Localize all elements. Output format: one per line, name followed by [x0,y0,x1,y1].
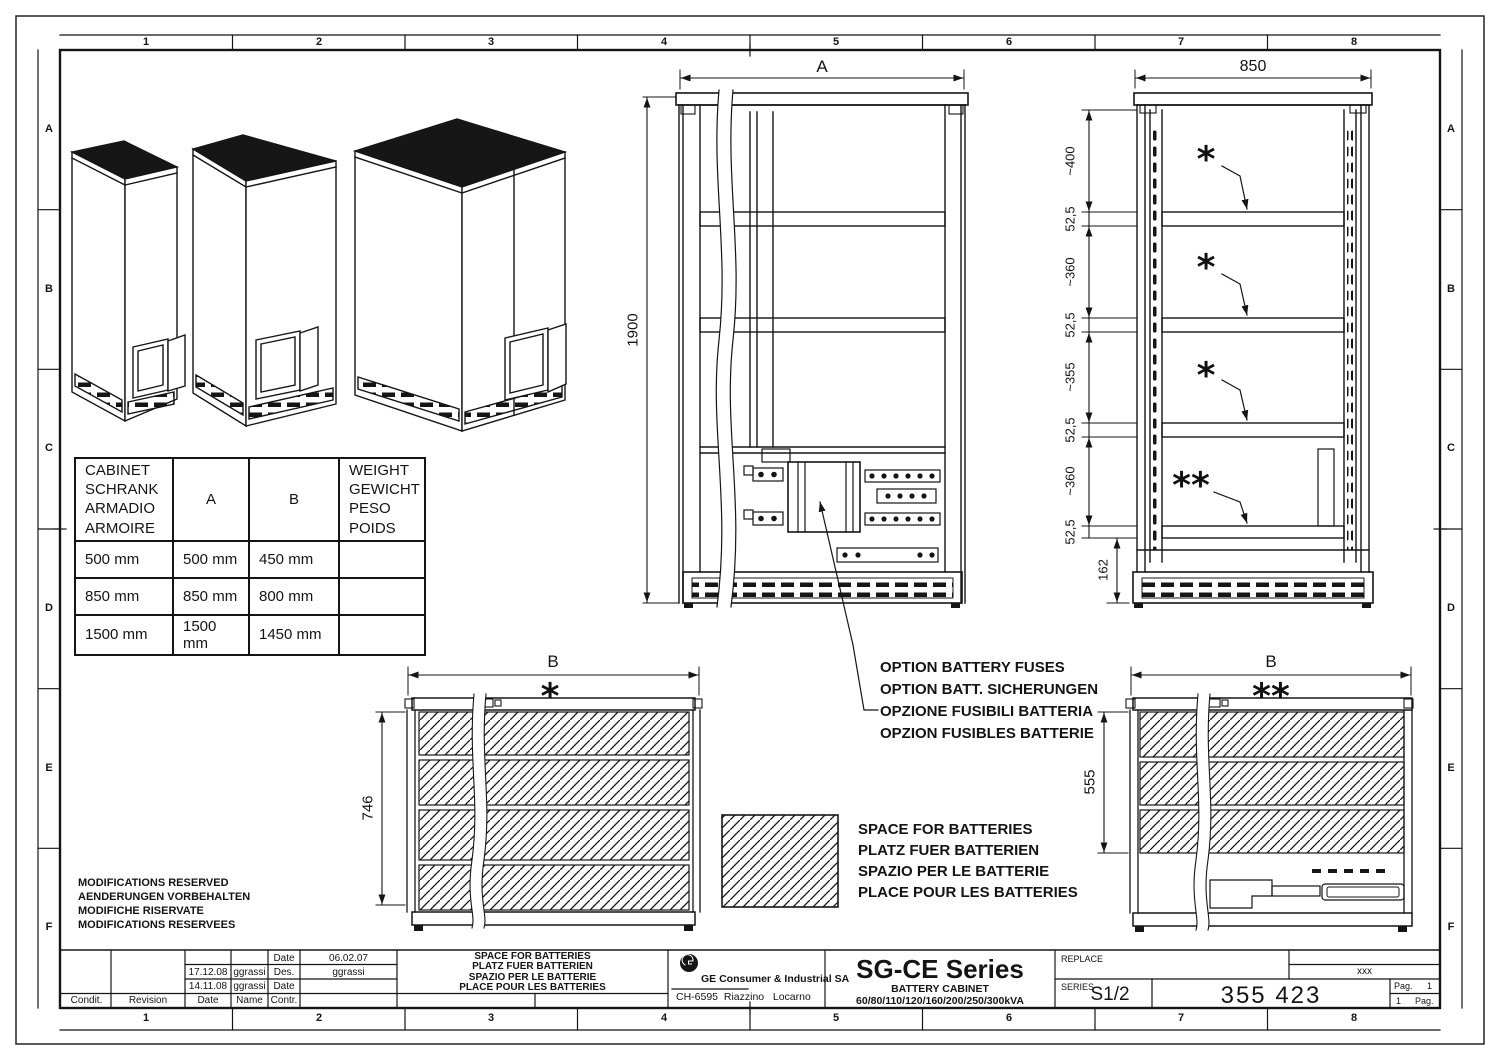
grid-column-label: 5 [821,36,851,48]
table-header-b: B [249,458,339,541]
modifications-note-line: AENDERUNGEN VORBEHALTEN [78,891,250,903]
grid-row-label: A [1436,123,1466,135]
tray-marker-double-asterisk: ** [1172,466,1210,507]
dim-label-shelf-thickness: 52,5 [1063,417,1078,442]
battery-legend-line: SPACE FOR BATTERIES [858,822,1032,839]
shelf-marker-asterisk: * [1197,356,1216,397]
grid-row-label: C [1436,442,1466,454]
revision-des-value: ggrassi [300,967,397,978]
dim-label-plinth-height: 162 [1096,559,1111,581]
option-note-line: OPTION BATT. SICHERUNGEN [880,682,1098,699]
plan-view-right-drawing [1126,694,1413,932]
product-type: BATTERY CABINET [825,984,1055,996]
battery-legend-line: SPAZIO PER LE BATTERIE [858,864,1049,881]
drawing-title-line: PLACE POUR LES BATTERIES [397,983,668,994]
revision-date-label: Date [268,953,300,964]
option-note-line: OPZIONE FUSIBILI BATTERIA [880,704,1093,721]
plan-right-marker-double-asterisk: ** [1252,677,1290,718]
grid-column-label: 5 [821,1012,851,1024]
table-header-a: A [173,458,249,541]
grid-column-label: 4 [649,1012,679,1024]
revision-header-date: Date [185,995,231,1006]
product-series-title: SG-CE Series [825,955,1055,984]
grid-column-label: 2 [304,36,334,48]
side-view-drawing [1133,93,1373,608]
battery-legend-line: PLACE POUR LES BATTERIES [858,885,1078,902]
pag-bottom-value: 1 [1396,996,1401,1006]
dim-label-front-width: A [802,57,842,76]
dim-label-shelf-gap: ~400 [1063,146,1078,175]
table-row: 500 mm 500 mm 450 mm [75,541,425,578]
grid-row-label: D [1436,602,1466,614]
shelf-marker-asterisk: * [1197,248,1216,289]
revision-date-value: 06.02.07 [300,953,397,964]
grid-row-label: F [1436,921,1466,933]
dim-label-shelf-thickness: 52,5 [1063,312,1078,337]
grid-column-label: 8 [1339,1012,1369,1024]
revision-header-name: Name [231,995,268,1006]
table-header-cabinet: CABINETSCHRANK ARMADIOARMOIRE [85,461,168,538]
pag-bottom-label: Pag. [1415,996,1434,1006]
dim-label-plan-left-width: B [533,652,573,671]
front-view-drawing [676,90,968,608]
table-row: 850 mm 850 mm 800 mm [75,578,425,615]
dim-label-plan-right-width: B [1251,652,1291,671]
modifications-note-line: MODIFICHE RISERVATE [78,905,204,917]
grid-row-label: B [1436,283,1466,295]
revision-header-revision: Revision [111,995,185,1006]
dim-label-shelf-gap: ~355 [1063,362,1078,391]
grid-column-label: 7 [1166,1012,1196,1024]
modifications-note-line: MODIFICATIONS RESERVED [78,877,229,889]
dim-label-shelf-gap: ~360 [1063,257,1078,286]
grid-row-label: E [34,762,64,774]
grid-column-label: 1 [131,36,161,48]
dim-label-shelf-thickness: 52,5 [1063,206,1078,231]
replace-label: REPLACE [1061,954,1103,964]
revision-date2-label: Date [268,981,300,992]
dim-label-front-height: 1900 [625,313,642,346]
plan-view-left-drawing [405,694,702,931]
dim-label-shelf-gap: ~360 [1063,466,1078,495]
table-header-weight: WEIGHTGEWICHT PESOPOIDS [349,461,420,538]
grid-column-label: 2 [304,1012,334,1024]
replace-value: xxx [1289,966,1440,977]
cabinet-size-table: CABINETSCHRANK ARMADIOARMOIRE A B WEIGHT… [74,457,426,656]
battery-legend-swatch [722,815,838,907]
series-value: S1/2 [1068,984,1152,1005]
grid-column-label: 1 [131,1012,161,1024]
dim-label-shelf-thickness: 52,5 [1063,519,1078,544]
grid-row-label: B [34,283,64,295]
grid-column-label: 8 [1339,36,1369,48]
leader-lines [820,166,1247,710]
revision-header-condit: Condit. [62,995,111,1006]
revision-entry-date: 17.12.08 [185,967,231,978]
revision-des-label: Des. [268,967,300,978]
grid-column-label: 6 [994,1012,1024,1024]
grid-row-label: F [34,921,64,933]
drawing-sheet: 1 2 3 4 5 6 7 8 1 2 3 4 5 6 7 8 A B C D … [0,0,1500,1060]
battery-legend-line: PLATZ FUER BATTERIEN [858,843,1039,860]
dim-label-plan-right-depth: 555 [1082,769,1099,794]
grid-column-label: 6 [994,36,1024,48]
grid-row-label: E [1436,762,1466,774]
drawing-title-line: PLATZ FUER BATTERIEN [397,962,668,973]
company-address: CH-6595 Riazzino Locarno [676,992,811,1004]
grid-row-label: C [34,442,64,454]
option-note-line: OPTION BATTERY FUSES [880,660,1065,677]
grid-row-label: A [34,123,64,135]
revision-header-contr: Contr. [268,995,300,1006]
revision-entry-name: ggrassi [231,981,268,992]
table-row: 1500 mm 1500 mm 1450 mm [75,615,425,655]
grid-column-label: 4 [649,36,679,48]
option-note-line: OPZION FUSIBLES BATTERIE [880,726,1094,743]
revision-entry-name: ggrassi [231,967,268,978]
plan-left-marker-asterisk: * [541,677,560,718]
dim-label-plan-left-depth: 746 [360,795,377,820]
grid-column-label: 7 [1166,36,1196,48]
revision-entry-date: 14.11.08 [185,981,231,992]
modifications-note-line: MODIFICATIONS RESERVEES [78,919,235,931]
pag-top-label: Pag. [1394,981,1413,991]
grid-column-label: 3 [476,1012,506,1024]
grid-row-label: D [34,602,64,614]
dim-label-side-width: 850 [1228,58,1278,76]
drawing-number: 355 423 [1152,983,1390,1010]
grid-column-label: 3 [476,36,506,48]
product-ratings: 60/80/110/120/160/200/250/300kVA [825,996,1055,1008]
isometric-cabinets [72,119,566,431]
pag-top-value: 1 [1427,981,1432,991]
shelf-marker-asterisk: * [1197,140,1216,181]
